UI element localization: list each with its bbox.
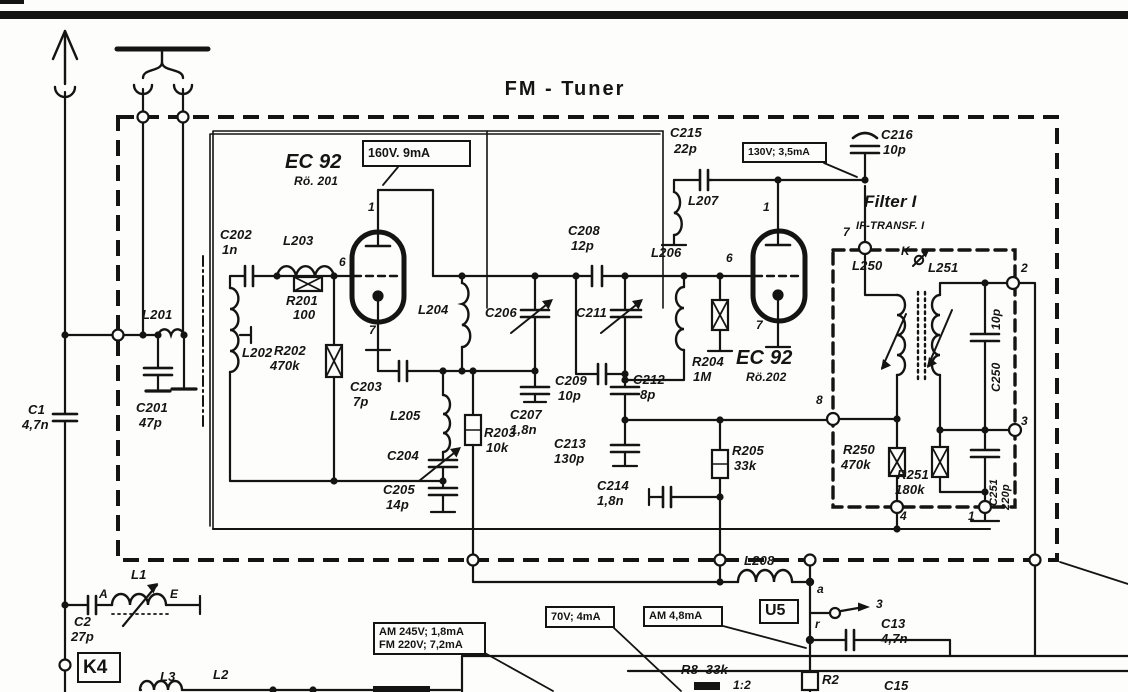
label-tube2-ref: Rö.202 xyxy=(746,371,787,383)
label-c250-val: 10p xyxy=(990,309,1002,330)
label-c203-ref: C203 xyxy=(350,380,382,393)
label-tube2-pin7: 7 xyxy=(756,319,763,331)
label-c214-val: 1,8n xyxy=(597,494,624,507)
label-c209-ref: C209 xyxy=(555,374,587,387)
label-c213-val: 130p xyxy=(554,452,584,465)
label-c212-val: 8p xyxy=(640,388,656,401)
voltage-130v-text: 130V; 3,5mA xyxy=(748,146,821,158)
label-point-r: r xyxy=(815,618,820,630)
label-filter-term3: 3 xyxy=(1021,415,1028,427)
label-r202-ref: R202 xyxy=(274,344,306,357)
label-l205: L205 xyxy=(390,409,420,422)
label-r203-val: 10k xyxy=(486,441,508,454)
label-c212-ref: C212 xyxy=(633,373,665,386)
schematic-page: FM - Tuner C14,7nC227pL1AEL3L2C20147pL20… xyxy=(0,0,1128,692)
label-c208-val: 12p xyxy=(571,239,594,252)
label-c2-val: 27p xyxy=(71,630,94,643)
label-l206: L206 xyxy=(651,246,681,259)
label-tube2-type: EC 92 xyxy=(736,348,793,368)
label-tube1-ref: Rö. 201 xyxy=(294,175,338,187)
label-r201-val: 100 xyxy=(293,308,315,321)
label-c201-val: 47p xyxy=(139,416,162,429)
label-switch-term3: 3 xyxy=(876,598,883,610)
label-filter-term8: 8 xyxy=(816,394,823,406)
connector-u5-text: U5 xyxy=(765,602,793,620)
label-r205-val: 33k xyxy=(734,459,756,472)
label-r251-ref: R251 xyxy=(897,468,929,481)
label-c202-ref: C202 xyxy=(220,228,252,241)
label-l201: L201 xyxy=(142,308,172,321)
label-r202-val: 470k xyxy=(270,359,300,372)
label-c15: C15 xyxy=(884,679,908,692)
label-point-a: a xyxy=(817,583,824,595)
label-r8: R8 33k xyxy=(681,663,728,676)
connector-k4-text: K4 xyxy=(83,657,115,679)
label-c213-ref: C213 xyxy=(554,437,586,450)
label-tube1-type: EC 92 xyxy=(285,152,342,172)
label-c215-val: 22p xyxy=(674,142,697,155)
label-r204-val: 1M xyxy=(693,370,711,383)
label-l3: L3 xyxy=(160,670,176,683)
label-c201-ref: C201 xyxy=(136,401,168,414)
voltage-am-fm-text: AM 245V; 1,8mA xyxy=(379,626,480,639)
current-am48: AM 4,8mA xyxy=(643,606,723,627)
voltage-am-fm-text: FM 220V; 7,2mA xyxy=(379,639,480,652)
label-filter-term7: 7 xyxy=(843,226,850,238)
label-c207-ref: C207 xyxy=(510,408,542,421)
label-l1-terminal-a: A xyxy=(99,588,108,600)
voltage-160v-text: 160V. 9mA xyxy=(368,146,465,160)
label-r250-ref: R250 xyxy=(843,443,875,456)
label-coupling-k: K xyxy=(901,245,910,257)
voltage-70v-text: 70V; 4mA xyxy=(551,611,609,624)
label-c2-ref: C2 xyxy=(74,615,91,628)
label-l251: L251 xyxy=(928,261,958,274)
label-l207: L207 xyxy=(688,194,718,207)
label-r2: R2 xyxy=(822,673,839,686)
label-tube1-pin7: 7 xyxy=(369,324,376,336)
label-c202-val: 1n xyxy=(222,243,238,256)
connector-k4: K4 xyxy=(77,652,121,683)
label-c251-ref: C251 xyxy=(989,479,1000,506)
label-r204-ref: R204 xyxy=(692,355,724,368)
label-c203-val: 7p xyxy=(353,395,369,408)
label-filter-term2: 2 xyxy=(1021,262,1028,274)
label-c204: C204 xyxy=(387,449,419,462)
voltage-160v: 160V. 9mA xyxy=(362,140,471,167)
label-c207-val: 1,8n xyxy=(510,423,537,436)
label-c205-val: 14p xyxy=(386,498,409,511)
label-l204: L204 xyxy=(418,303,448,316)
label-l203: L203 xyxy=(283,234,313,247)
label-c216-ref: C216 xyxy=(881,128,913,141)
label-c1-ref: C1 xyxy=(28,403,45,416)
label-c13-val: 4,7n xyxy=(881,632,908,645)
voltage-70v: 70V; 4mA xyxy=(545,606,615,628)
label-c209-val: 10p xyxy=(558,389,581,402)
label-c206: C206 xyxy=(485,306,517,319)
current-am48-text: AM 4,8mA xyxy=(649,610,717,623)
label-tube1-pin6: 6 xyxy=(339,256,346,268)
label-l250: L250 xyxy=(852,259,882,272)
label-r250-val: 470k xyxy=(841,458,871,471)
label-c216-val: 10p xyxy=(883,143,906,156)
voltage-130v: 130V; 3,5mA xyxy=(742,142,827,163)
label-filter-term4: 4 xyxy=(900,510,907,522)
label-c215-ref: C215 xyxy=(670,126,702,139)
label-r205-ref: R205 xyxy=(732,444,764,457)
label-tube2-pin1: 1 xyxy=(763,201,770,213)
label-l1: L1 xyxy=(131,568,147,581)
label-l1-terminal-e: E xyxy=(170,588,178,600)
label-filter-term1: 1 xyxy=(968,510,975,522)
label-r251-val: 180k xyxy=(895,483,925,496)
label-c211: C211 xyxy=(576,306,607,319)
label-filter-subtitle: IF-TRANSF. I xyxy=(856,221,924,232)
label-c214-ref: C214 xyxy=(597,479,629,492)
label-r201-ref: R201 xyxy=(286,294,318,307)
connector-u5: U5 xyxy=(759,599,799,624)
label-ratio: 1:2 xyxy=(733,679,751,691)
label-tube1-pin1: 1 xyxy=(368,201,375,213)
label-c205-ref: C205 xyxy=(383,483,415,496)
label-filter-title: Filter I xyxy=(864,193,917,210)
label-l208: L208 xyxy=(744,554,774,567)
label-l2: L2 xyxy=(213,668,229,681)
label-l202: L202 xyxy=(242,346,272,359)
label-c208-ref: C208 xyxy=(568,224,600,237)
label-c1-val: 4,7n xyxy=(22,418,49,431)
label-tube2-pin6: 6 xyxy=(726,252,733,264)
label-c250-ref: C250 xyxy=(990,363,1002,393)
label-overlay: C14,7nC227pL1AEL3L2C20147pL201L202C2021n… xyxy=(0,0,1128,692)
voltage-am-fm: AM 245V; 1,8mAFM 220V; 7,2mA xyxy=(373,622,486,655)
label-c251-val: 220p xyxy=(1001,484,1012,510)
label-c13-ref: C13 xyxy=(881,617,905,630)
